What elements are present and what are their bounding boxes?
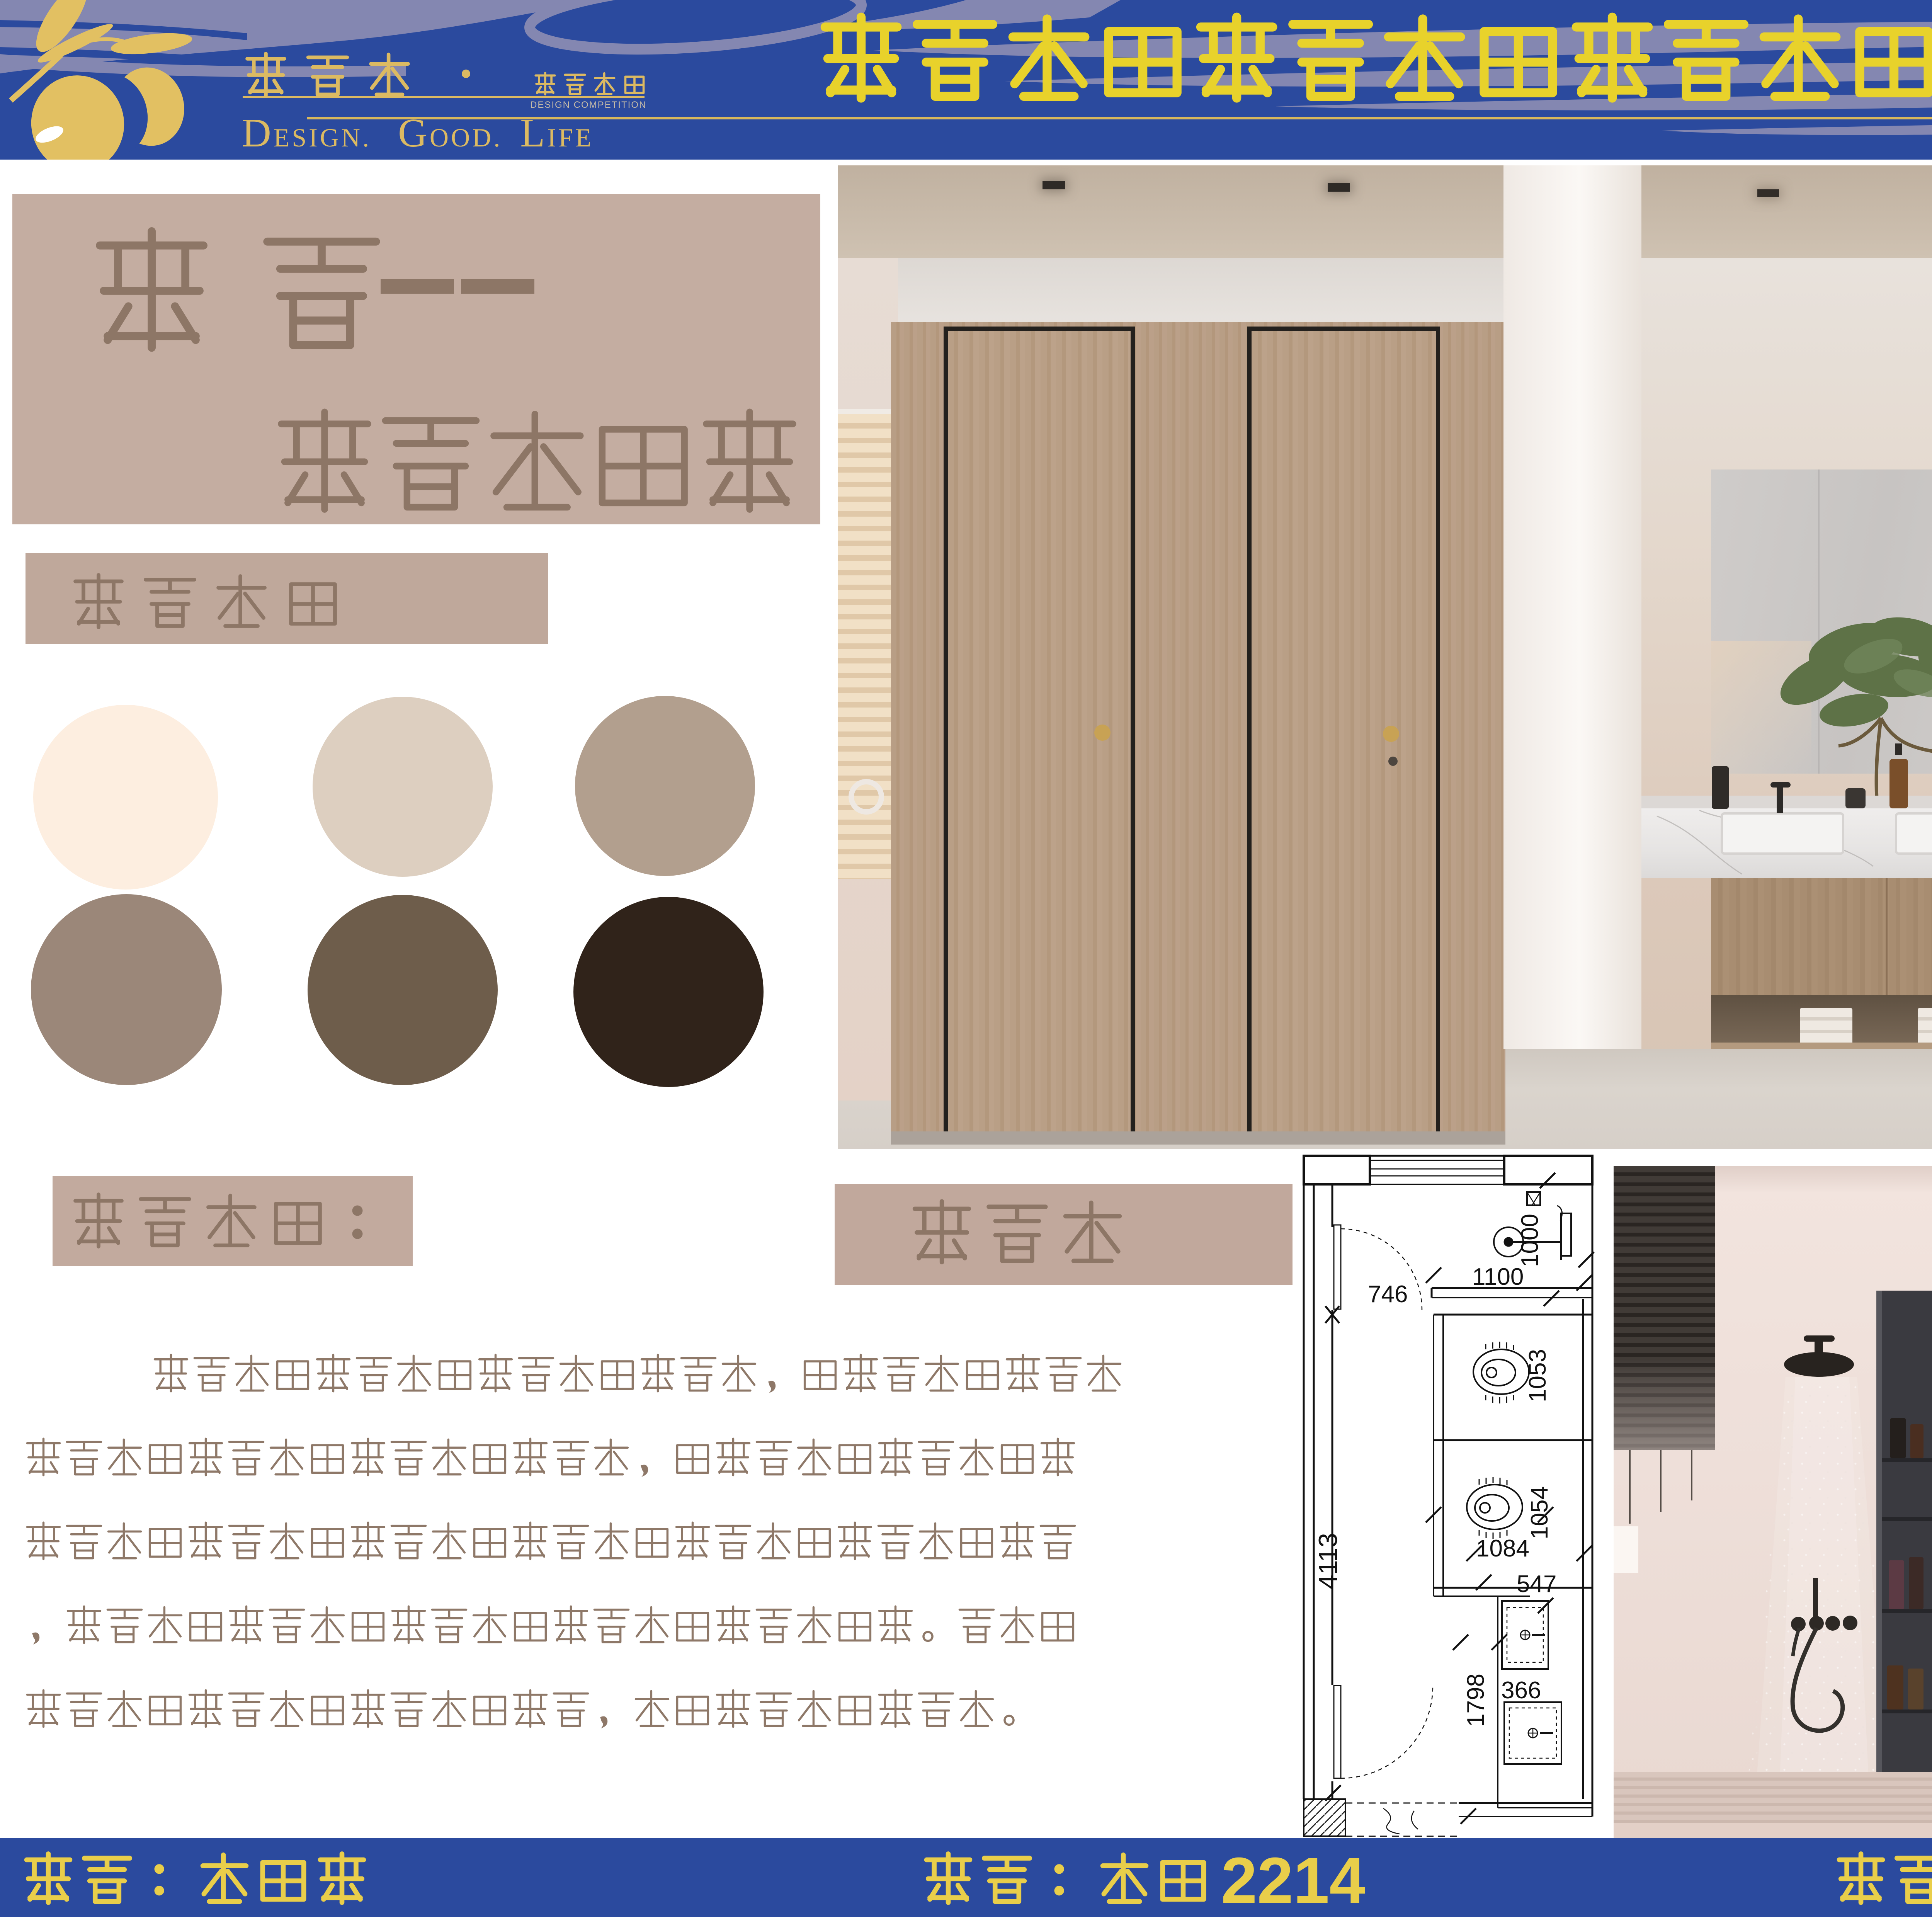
svg-text:1100: 1100: [1472, 1264, 1524, 1290]
svg-text:746: 746: [1368, 1281, 1408, 1308]
svg-text:547: 547: [1517, 1571, 1556, 1597]
svg-text:1798: 1798: [1463, 1674, 1489, 1727]
svg-text:1084: 1084: [1476, 1535, 1529, 1562]
svg-text:366: 366: [1501, 1677, 1541, 1704]
svg-text:1053: 1053: [1524, 1349, 1551, 1402]
svg-text:4113: 4113: [1313, 1533, 1343, 1589]
svg-text:1054: 1054: [1526, 1486, 1553, 1539]
svg-text:1000: 1000: [1517, 1214, 1543, 1267]
